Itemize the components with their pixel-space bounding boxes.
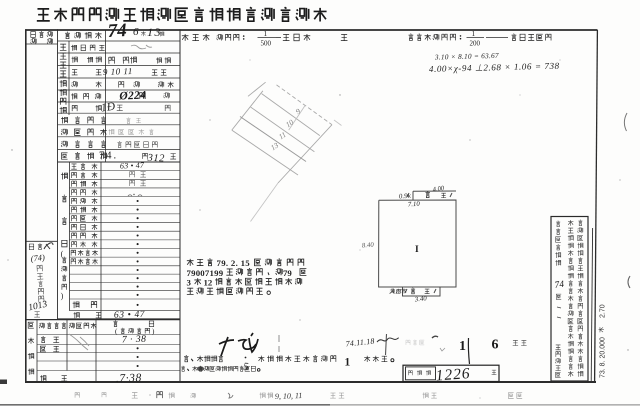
svg-text:7.10: 7.10 [408,201,421,209]
svg-text:3: 3 [187,277,192,287]
svg-text:9 10 11: 9 10 11 [103,66,133,77]
svg-text:5: 5 [243,362,249,373]
svg-text:7 · 38: 7 · 38 [122,334,147,346]
svg-text:1226: 1226 [435,365,471,384]
svg-text:79. 2. 15: 79. 2. 15 [217,258,251,268]
svg-text:): ) [61,292,64,301]
svg-text:1: 1 [459,339,466,354]
svg-text:63 • 47: 63 • 47 [120,161,145,171]
svg-text:74.: 74. [99,150,118,161]
svg-text:人口: 人口 [389,288,402,296]
svg-text:3.10 × 8.10 = 63.67: 3.10 × 8.10 = 63.67 [434,52,499,62]
svg-text:(: ( [61,250,64,259]
svg-text:.7·38: .7·38 [116,372,142,385]
svg-text:200: 200 [470,39,481,47]
svg-text:I: I [415,245,419,255]
svg-text:Ø224: Ø224 [118,90,146,103]
svg-text:79007199: 79007199 [187,268,224,278]
svg-text:1Ð: 1Ð [100,101,116,115]
svg-text:1: 1 [264,29,268,38]
svg-text:1: 1 [345,357,351,369]
svg-text:(74): (74) [30,252,45,263]
svg-text:6: 6 [492,338,499,353]
svg-text:312: 312 [146,153,165,165]
svg-text:6: 6 [133,26,139,38]
svg-text:3.40: 3.40 [413,295,427,303]
svg-text:0.9κ: 0.9κ [399,192,412,201]
svg-text:63 • 47: 63 • 47 [114,310,146,321]
svg-text:9, 10, 11: 9, 10, 11 [275,391,303,401]
svg-text:500: 500 [261,39,272,47]
svg-text:12: 12 [204,277,213,287]
svg-text:74: 74 [554,280,565,291]
svg-text:1: 1 [472,29,476,38]
svg-text:2.70: 2.70 [600,304,607,318]
svg-text:79: 79 [283,268,292,278]
svg-text:8.40: 8.40 [362,242,375,250]
svg-text:73. 8. 20.000: 73. 8. 20.000 [600,337,607,378]
svg-text:13: 13 [147,25,162,39]
svg-text:74: 74 [107,20,127,42]
